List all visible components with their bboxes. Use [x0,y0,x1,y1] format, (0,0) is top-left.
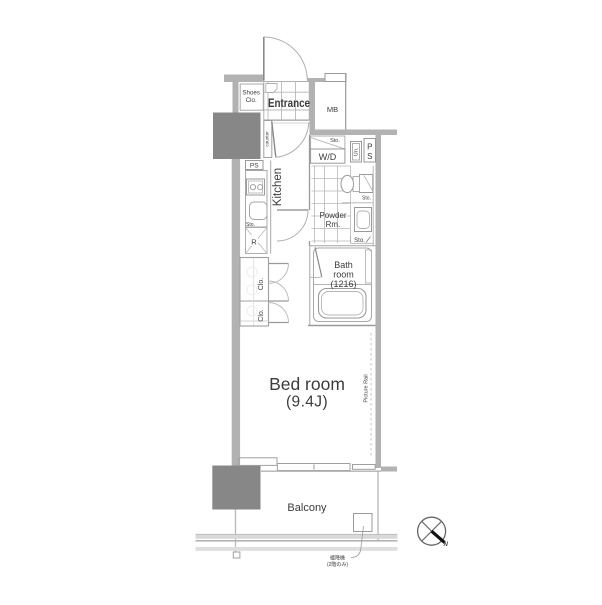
svg-text:緩降機: 緩降機 [330,555,345,562]
svg-text:Kitchen: Kitchen [272,168,284,206]
svg-text:S: S [367,152,372,161]
svg-text:(2階のみ): (2階のみ) [327,561,348,568]
svg-text:(1216): (1216) [330,279,356,289]
svg-text:Bed room: Bed room [269,374,345,394]
svg-text:Bath: Bath [334,260,353,270]
svg-text:MB: MB [327,105,338,114]
svg-text:Sto.: Sto. [354,238,365,244]
svg-text:PS: PS [250,163,259,170]
svg-text:Powder: Powder [319,211,346,220]
svg-text:Entrance: Entrance [268,96,310,110]
svg-text:Clo.: Clo. [246,97,257,104]
svg-text:Balcony: Balcony [287,502,327,514]
svg-text:Clo.: Clo. [258,278,265,291]
svg-text:Clo.: Clo. [258,309,265,322]
svg-text:N: N [444,542,449,548]
svg-text:room: room [333,270,354,280]
svg-text:W/D: W/D [319,152,337,162]
svg-text:Rm.: Rm. [326,220,341,229]
svg-text:Sto.: Sto. [362,196,371,202]
svg-text:P: P [367,143,372,152]
svg-text:counter: counter [264,131,269,147]
svg-text:(9.4J): (9.4J) [286,394,328,411]
svg-text:Un.: Un. [354,147,360,156]
svg-text:Shoes: Shoes [242,90,260,97]
svg-text:R: R [251,238,257,247]
svg-text:Picture Rail: Picture Rail [364,374,370,402]
svg-text:Sto.: Sto. [330,138,340,144]
